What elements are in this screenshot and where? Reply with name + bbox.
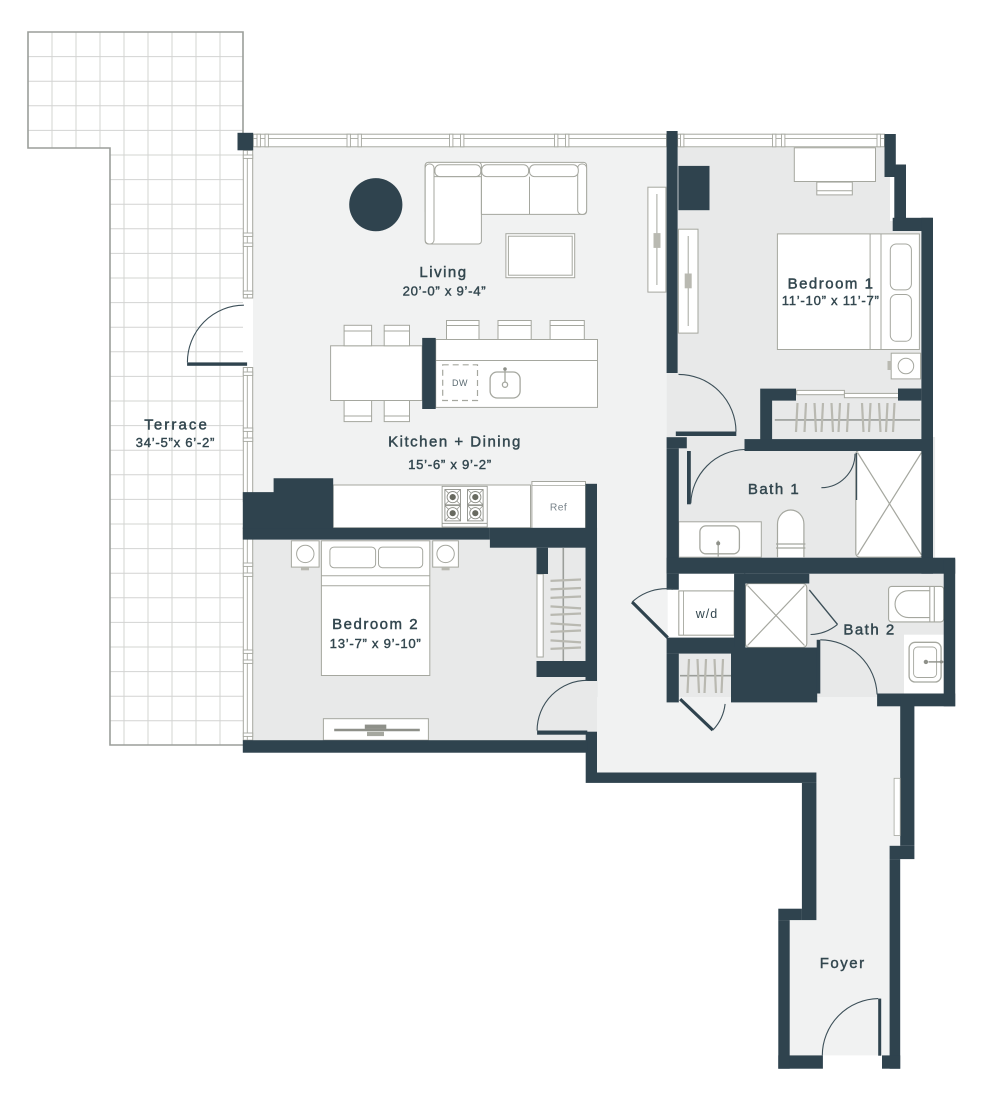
- svg-text:Bedroom 2: Bedroom 2: [332, 616, 419, 633]
- svg-text:DW: DW: [452, 378, 468, 388]
- svg-text:Terrace: Terrace: [144, 417, 209, 434]
- svg-text:Ref: Ref: [550, 503, 567, 514]
- svg-text:13’-7” x 9’-10”: 13’-7” x 9’-10”: [330, 636, 422, 651]
- svg-text:Bath 1: Bath 1: [748, 481, 800, 498]
- svg-text:15’-6” x 9’-2”: 15’-6” x 9’-2”: [408, 457, 492, 472]
- svg-text:Kitchen + Dining: Kitchen + Dining: [388, 434, 522, 451]
- svg-text:Bedroom 1: Bedroom 1: [788, 276, 875, 293]
- svg-text:Foyer: Foyer: [820, 955, 866, 972]
- svg-text:20’-0” x 9’-4”: 20’-0” x 9’-4”: [403, 284, 487, 299]
- svg-text:Bath 2: Bath 2: [843, 622, 895, 639]
- svg-text:34’-5”x 6’-2”: 34’-5”x 6’-2”: [136, 435, 215, 450]
- svg-text:Living: Living: [419, 264, 467, 281]
- svg-text:w/d: w/d: [695, 607, 718, 621]
- svg-text:11’-10” x 11’-7”: 11’-10” x 11’-7”: [782, 293, 880, 308]
